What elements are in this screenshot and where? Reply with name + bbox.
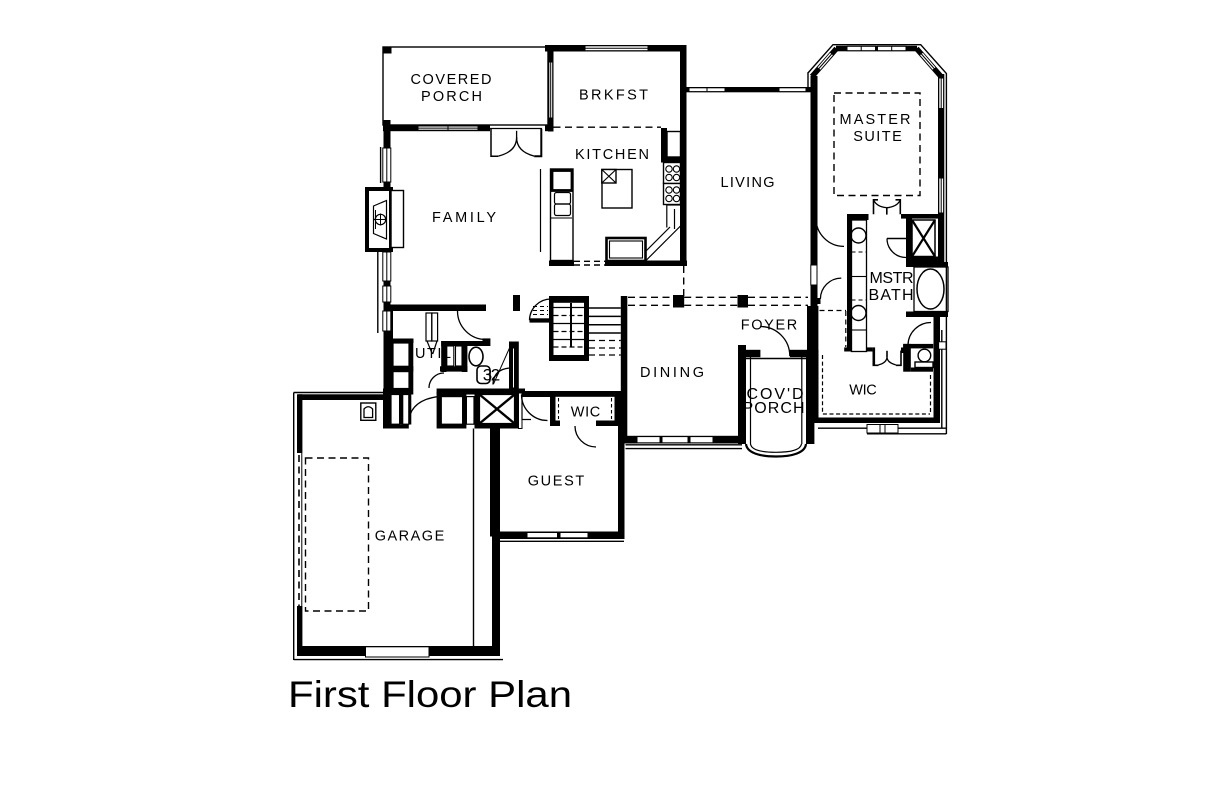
svg-text:WIC: WIC <box>571 405 601 421</box>
svg-text:WIC: WIC <box>849 383 877 399</box>
svg-text:DINING: DINING <box>640 365 704 381</box>
svg-text:COVERED: COVERED <box>411 72 492 88</box>
svg-text:First Floor Plan: First Floor Plan <box>288 674 572 715</box>
svg-text:KITCHEN: KITCHEN <box>575 147 649 163</box>
svg-text:UTIL: UTIL <box>415 346 451 362</box>
svg-text:FOYER: FOYER <box>741 318 798 334</box>
svg-text:PORCH: PORCH <box>743 400 805 417</box>
svg-text:BATH: BATH <box>869 287 914 304</box>
svg-text:MASTER: MASTER <box>840 112 911 128</box>
svg-text:GARAGE: GARAGE <box>375 529 445 545</box>
svg-text:PORCH: PORCH <box>421 89 482 105</box>
svg-text:GUEST: GUEST <box>528 474 585 490</box>
svg-text:MSTR: MSTR <box>870 270 914 287</box>
svg-text:SUITE: SUITE <box>853 129 902 145</box>
svg-text:32: 32 <box>483 366 501 385</box>
